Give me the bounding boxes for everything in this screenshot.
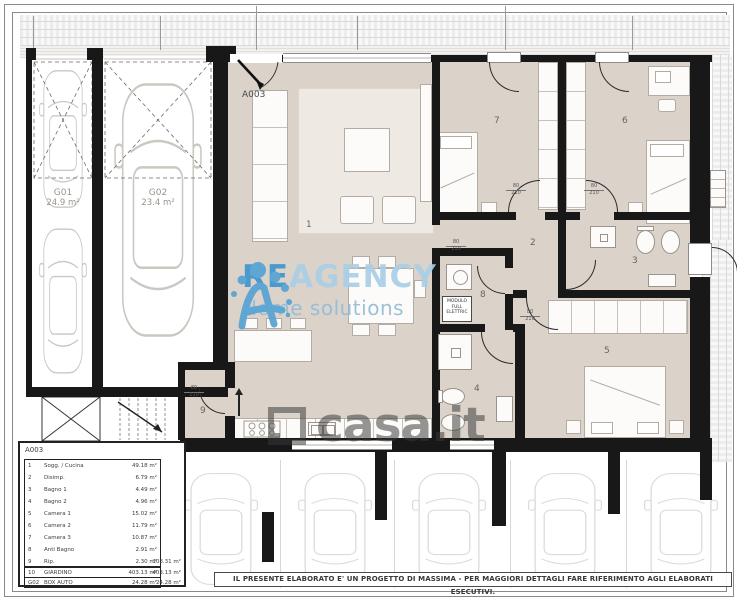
module-line1: MODULO xyxy=(447,299,467,304)
wall xyxy=(178,362,228,370)
garage-g01-label: G01 24.9 m² xyxy=(28,188,98,208)
room-label-6: 6 xyxy=(622,116,628,126)
room-label-9: 9 xyxy=(200,406,206,416)
wall xyxy=(92,55,103,395)
row-name: Disimp. xyxy=(44,475,113,481)
bidet xyxy=(661,230,680,254)
row-area: 15.02 m² xyxy=(113,511,160,517)
shower-cabinet xyxy=(590,226,616,248)
toilet-tank xyxy=(637,226,654,231)
subtotal-interior: 108.31 m² xyxy=(137,557,181,567)
row-name: Sogg. / Cucina xyxy=(44,463,113,469)
disclaimer-banner: IL PRESENTE ELABORATO E' UN PROGETTO DI … xyxy=(214,572,732,587)
wall xyxy=(558,290,690,298)
table-body: 1Sogg. / Cucina49.18 m² 2Disimp.6.79 m² … xyxy=(24,459,161,567)
dimension-tick xyxy=(160,16,161,50)
dimension-tick xyxy=(632,16,633,50)
row-id: 5 xyxy=(25,511,44,517)
row-id: 8 xyxy=(25,547,44,553)
wall xyxy=(513,290,527,298)
wall-stub xyxy=(608,452,620,514)
coffee-table xyxy=(344,128,390,172)
ramp xyxy=(112,394,174,444)
row-area: 4.96 m² xyxy=(113,499,160,505)
sofa xyxy=(252,90,288,242)
door-dimension: 80210 xyxy=(584,184,604,197)
parking-stall-line xyxy=(394,460,395,588)
wall xyxy=(432,62,440,225)
table-row: 2Disimp.6.79 m² xyxy=(25,472,160,484)
wardrobe xyxy=(548,300,688,334)
dimension-tick xyxy=(33,16,34,50)
room-label-4: 4 xyxy=(474,384,480,394)
car-garage-g01-b xyxy=(38,222,88,380)
row-id: 9 xyxy=(25,559,44,565)
row-name: Camera 2 xyxy=(44,523,113,529)
room-label-1: 1 xyxy=(306,220,312,230)
washing-machine xyxy=(446,264,472,290)
toilet xyxy=(636,230,655,254)
row-area: 2.91 m² xyxy=(113,547,160,553)
wall xyxy=(225,416,235,440)
pillow xyxy=(650,144,684,157)
dining-chair xyxy=(378,324,396,336)
dimension-tick xyxy=(505,6,506,50)
shower-drain xyxy=(451,348,461,358)
door-dimension: 80210 xyxy=(520,310,540,323)
agency-watermark: REAGENCY Home solutions xyxy=(230,262,437,320)
exterior-hatch-band-top xyxy=(20,15,730,46)
door-height: 210 xyxy=(520,316,540,323)
tv-cabinet xyxy=(420,84,432,202)
table-row: 8Anti Bagno2.91 m² xyxy=(25,544,160,556)
row-name: Anti Bagno xyxy=(44,547,113,553)
agency-logo-icon xyxy=(230,262,292,334)
pillow xyxy=(637,422,659,434)
brand-light: AGENCY xyxy=(289,259,437,295)
door-height: 210 xyxy=(506,190,526,197)
monitor xyxy=(655,71,671,83)
casa-logo-icon xyxy=(268,407,306,445)
wall-stub xyxy=(700,452,712,500)
door-height: 210 xyxy=(584,190,604,197)
room-label-8: 8 xyxy=(480,290,486,300)
blanket-fold xyxy=(440,173,474,189)
door-height: 210 xyxy=(446,246,466,253)
door-dimension: 80210 xyxy=(506,184,526,197)
electric-module-box: MODULO FULL ELETTRIC xyxy=(442,296,472,322)
table-row: 7Camera 310.87 m² xyxy=(25,532,160,544)
row-area: 11.79 m² xyxy=(113,523,160,529)
wall xyxy=(440,212,516,220)
dimension-tick xyxy=(357,16,358,50)
row-name: Rip. xyxy=(44,559,113,565)
room-label-5: 5 xyxy=(604,346,610,356)
row-id: 4 xyxy=(25,499,44,505)
dimension-tick xyxy=(256,6,257,50)
row-area: 10.87 m² xyxy=(113,535,160,541)
row-name: Bagno 1 xyxy=(44,487,113,493)
entrance-label: A003 xyxy=(242,90,265,100)
bathroom-sink xyxy=(496,396,513,422)
wall xyxy=(566,212,580,220)
wall xyxy=(690,277,710,445)
module-line3: ELETTRIC xyxy=(446,310,467,315)
row-id: G02 xyxy=(25,580,44,586)
garage-g01-area: 24.9 m² xyxy=(28,198,98,208)
wall xyxy=(515,330,525,438)
casa-wordmark: casa.it xyxy=(316,402,485,449)
row-area: 6.79 m² xyxy=(113,475,160,481)
wall xyxy=(690,62,710,243)
kitchen-island xyxy=(234,330,312,362)
wall xyxy=(225,362,235,388)
desk-chair xyxy=(658,99,676,112)
washer-drum xyxy=(453,270,468,285)
wall xyxy=(558,212,566,298)
table-title: A003 xyxy=(25,446,43,454)
armchair xyxy=(340,196,374,224)
door-height: 210 xyxy=(184,392,204,399)
wardrobe xyxy=(566,62,586,210)
nightstand xyxy=(566,420,581,434)
room-label-3: 3 xyxy=(632,256,638,266)
blanket-fold xyxy=(650,178,686,195)
row-name: Camera 1 xyxy=(44,511,113,517)
table-row: 6Camera 211.79 m² xyxy=(25,520,160,532)
shower-drain xyxy=(600,234,608,242)
armchair xyxy=(382,196,416,224)
floor-plan-canvas: G01 24.9 m² G02 23.4 m² xyxy=(0,0,737,600)
row-name: GIARDINO xyxy=(44,570,113,576)
garage-g01-code: G01 xyxy=(28,188,98,198)
dining-chair xyxy=(352,324,370,336)
desk xyxy=(648,66,690,96)
wall xyxy=(614,212,690,220)
row-name: Bagno 2 xyxy=(44,499,113,505)
room-label-2: 2 xyxy=(530,238,536,248)
room-schedule-table: A003 1Sogg. / Cucina49.18 m² 2Disimp.6.7… xyxy=(18,441,186,587)
row-id: 3 xyxy=(25,487,44,493)
table-row: 5Camera 115.02 m² xyxy=(25,508,160,520)
radiator xyxy=(710,170,726,208)
room-label-7: 7 xyxy=(494,116,500,126)
row-id: 2 xyxy=(25,475,44,481)
wall xyxy=(440,324,485,332)
shower xyxy=(438,334,472,370)
module-line2: FULL xyxy=(452,305,463,310)
row-area: 4.49 m² xyxy=(113,487,160,493)
garage-g02-code: G02 xyxy=(123,188,193,198)
wall-stub xyxy=(375,452,387,520)
bed-double xyxy=(584,366,666,438)
wardrobe xyxy=(538,62,558,210)
row-name: BOX AUTO xyxy=(44,580,113,586)
portal-watermark: casa.it xyxy=(268,402,485,449)
row-id: 6 xyxy=(25,523,44,529)
row-id: 10 xyxy=(25,570,44,576)
subtotal-box: 24.28 m² xyxy=(137,578,181,588)
row-name: Camera 3 xyxy=(44,535,113,541)
bed-single xyxy=(436,132,478,220)
wall xyxy=(505,294,513,330)
exterior-hatch-strip-right-upper xyxy=(712,55,732,240)
wall xyxy=(558,62,566,212)
stairwell xyxy=(40,394,104,444)
bathroom-sink xyxy=(648,274,676,287)
wall-stub xyxy=(262,512,274,562)
parking-stall-line xyxy=(280,460,281,588)
garage-g02-area: 23.4 m² xyxy=(123,198,193,208)
wall xyxy=(505,248,513,268)
table-row: 3Bagno 14.49 m² xyxy=(25,484,160,496)
table-row: 4Bagno 24.96 m² xyxy=(25,496,160,508)
wall xyxy=(213,55,228,362)
garage-g02-label: G02 23.4 m² xyxy=(123,188,193,208)
wall-stub xyxy=(492,452,506,526)
wall xyxy=(26,55,32,395)
wall xyxy=(178,362,185,440)
pillow xyxy=(591,422,613,434)
exterior-door xyxy=(688,243,712,275)
pillow xyxy=(440,136,472,149)
nightstand xyxy=(669,420,684,434)
subtotal-garden: 403.13 m² xyxy=(137,568,181,578)
door-dimension: 80210 xyxy=(446,240,466,253)
entrance-arrow xyxy=(238,390,240,416)
row-area: 49.18 m² xyxy=(113,463,160,469)
row-id: 7 xyxy=(25,535,44,541)
blanket-fold xyxy=(590,379,659,405)
parking-stall-line xyxy=(510,460,511,588)
row-id: 1 xyxy=(25,463,44,469)
door-dimension: 80210 xyxy=(184,386,204,399)
window xyxy=(283,53,431,63)
parking-stall-line xyxy=(626,460,627,588)
garage-door-swing-marks xyxy=(26,58,222,184)
table-row: 1Sogg. / Cucina49.18 m² xyxy=(25,460,160,472)
